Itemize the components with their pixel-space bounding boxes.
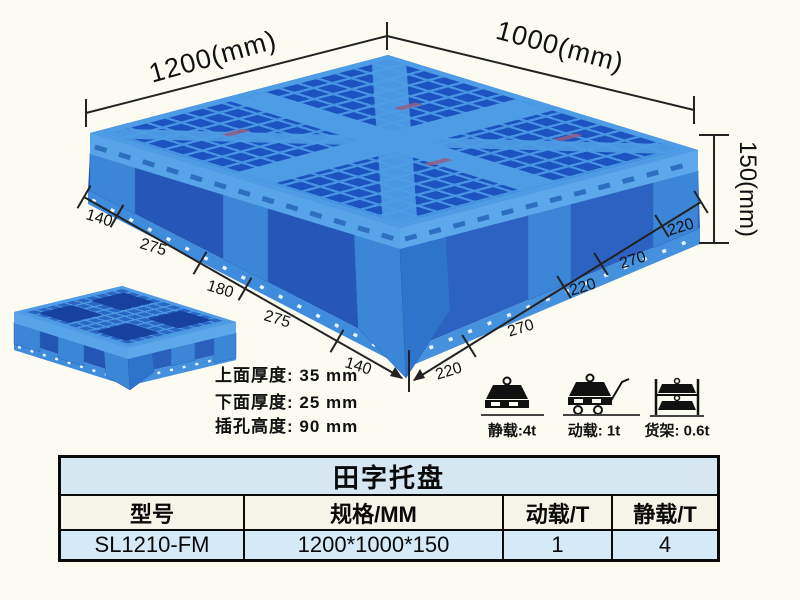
col-header-dynamic-load: 动载/T (504, 496, 611, 529)
static-load-icon (481, 378, 544, 416)
spec-table: 田字托盘 型号 规格/MM 动载/T 静载/T SL1210-FM 1200*1… (58, 455, 720, 562)
deck-label-tag (554, 133, 583, 141)
load-label-rack: 货架: 0.6t (644, 420, 709, 441)
pallet-hole (91, 293, 155, 311)
cell-static-load: 4 (613, 531, 717, 559)
product-spec-sheet: 1200(mm) 1000(mm) 150(mm) 140 275 180 27… (0, 0, 800, 600)
rack-load-icon (650, 379, 704, 417)
load-label-dynamic: 动载: 1t (568, 420, 621, 441)
col-header-model: 型号 (61, 496, 243, 529)
dynamic-load-icon (563, 375, 640, 416)
dim-label-height: 150(mm) (733, 141, 761, 237)
note-bottom-thickness: 下面厚度: 25 mm (215, 388, 358, 413)
note-top-thickness: 上面厚度: 35 mm (215, 361, 358, 386)
pallet-hole (147, 311, 211, 329)
load-label-static: 静载:4t (488, 420, 536, 441)
pallet-hole (39, 305, 103, 323)
cell-spec: 1200*1000*150 (245, 531, 502, 559)
load-icons (481, 375, 704, 417)
pallet-hole (96, 323, 160, 341)
table-title: 田字托盘 (61, 458, 717, 494)
cell-model: SL1210-FM (61, 531, 243, 559)
col-header-spec: 规格/MM (245, 496, 502, 529)
col-header-static-load: 静载/T (613, 496, 717, 529)
cell-dynamic-load: 1 (504, 531, 611, 559)
note-slot-height: 插孔高度: 90 mm (215, 412, 358, 437)
